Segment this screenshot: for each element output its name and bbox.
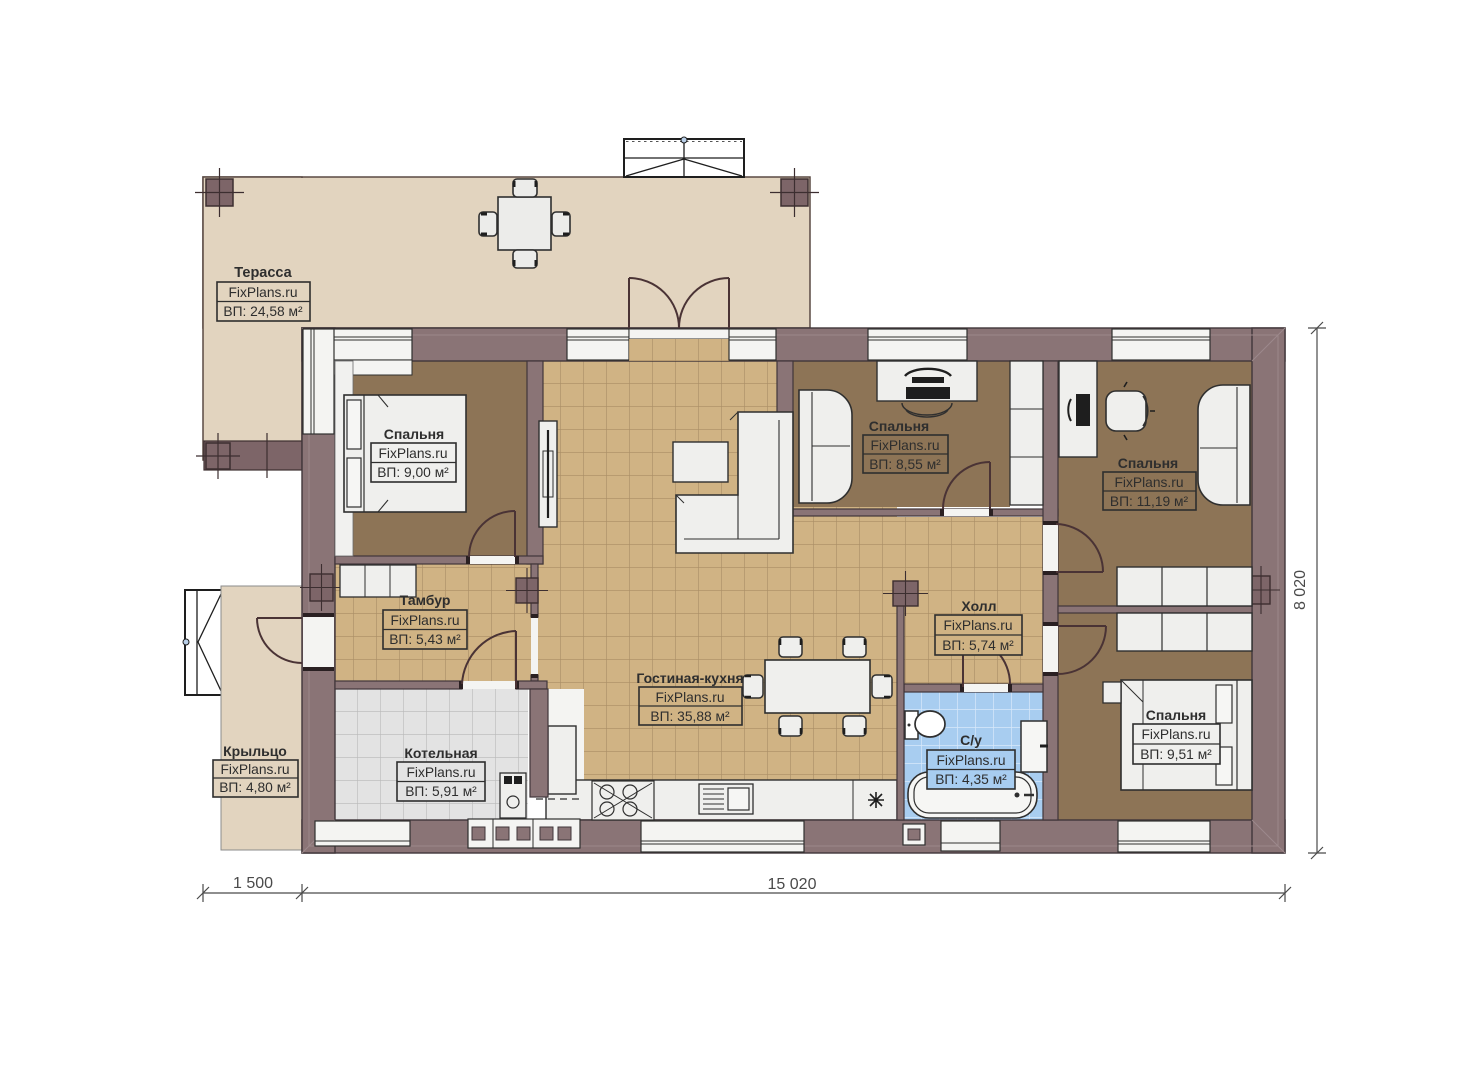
svg-text:С/у: С/у [960,732,982,748]
svg-text:FixPlans.ru: FixPlans.ru [936,753,1005,768]
svg-text:ВП: 4,80 м²: ВП: 4,80 м² [219,780,291,795]
svg-text:ВП: 35,88 м²: ВП: 35,88 м² [650,709,730,724]
svg-text:ВП: 9,51 м²: ВП: 9,51 м² [1140,747,1212,762]
svg-text:FixPlans.ru: FixPlans.ru [1114,475,1183,490]
svg-text:ВП: 4,35 м²: ВП: 4,35 м² [935,772,1007,787]
svg-text:Спальня: Спальня [384,426,444,442]
svg-text:FixPlans.ru: FixPlans.ru [220,762,289,777]
svg-text:Спальня: Спальня [1118,455,1178,471]
svg-text:Холл: Холл [961,598,996,614]
svg-text:FixPlans.ru: FixPlans.ru [870,438,939,453]
svg-text:Котельная: Котельная [404,745,477,761]
svg-text:1 500: 1 500 [233,875,273,892]
svg-text:FixPlans.ru: FixPlans.ru [228,285,297,300]
svg-text:FixPlans.ru: FixPlans.ru [1141,727,1210,742]
svg-text:Тамбур: Тамбур [400,592,451,608]
svg-text:FixPlans.ru: FixPlans.ru [406,765,475,780]
svg-text:Терасса: Терасса [234,265,292,281]
svg-text:Спальня: Спальня [869,418,929,434]
svg-text:Гостиная-кухня: Гостиная-кухня [636,670,743,686]
svg-text:15 020: 15 020 [768,876,817,893]
svg-text:Спальня: Спальня [1146,707,1206,723]
svg-text:ВП: 5,91 м²: ВП: 5,91 м² [405,784,477,799]
svg-text:Крыльцо: Крыльцо [223,743,287,759]
svg-text:ВП: 5,43 м²: ВП: 5,43 м² [389,632,461,647]
svg-text:ВП: 8,55 м²: ВП: 8,55 м² [869,457,941,472]
svg-text:ВП: 5,74 м²: ВП: 5,74 м² [942,638,1014,653]
svg-text:FixPlans.ru: FixPlans.ru [378,446,447,461]
svg-text:8 020: 8 020 [1292,570,1309,610]
svg-text:ВП: 24,58 м²: ВП: 24,58 м² [223,304,303,319]
svg-text:FixPlans.ru: FixPlans.ru [390,613,459,628]
svg-text:FixPlans.ru: FixPlans.ru [655,690,724,705]
svg-text:ВП: 9,00 м²: ВП: 9,00 м² [377,465,449,480]
svg-text:FixPlans.ru: FixPlans.ru [943,618,1012,633]
svg-text:ВП: 11,19 м²: ВП: 11,19 м² [1110,494,1189,509]
